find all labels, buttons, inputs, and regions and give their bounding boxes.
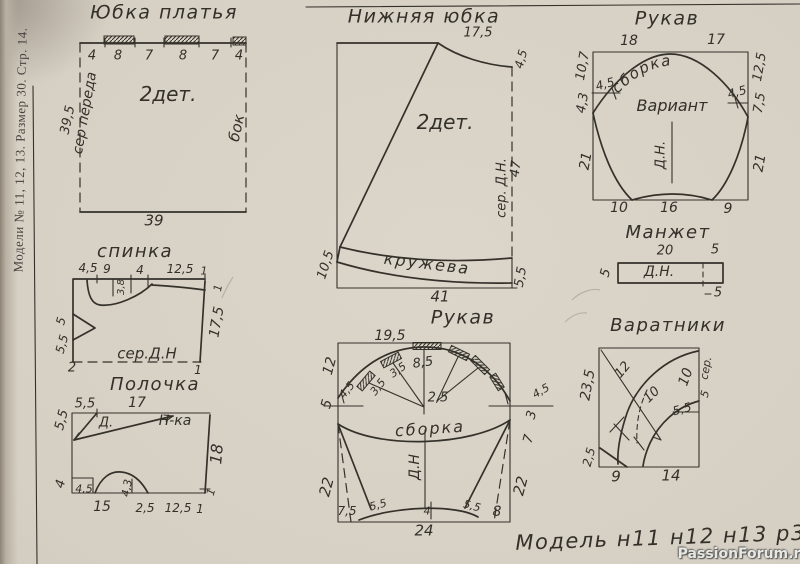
back-center-label: сер.Д.Н [117,347,177,362]
sleeve-top-dim-18: 18 [620,34,638,48]
sleeve-bottom-title: Рукав [431,309,496,328]
sleeve-top-left-dim-2: 21 [578,151,595,171]
pencil-marks [222,277,600,322]
sleeve-top-bottom-dim-0: 10 [610,201,628,215]
sleeve-top-bottom-dim-2: 9 [724,202,733,216]
back-top-dim-2: 4 [136,264,144,276]
front-top-dim-1: 17 [128,396,146,410]
pattern-sheet-page: сборка Юбка платья 4 8 7 8 7 4 39,5 сер … [0,0,800,564]
collars-bottom-dim-0: 9 [611,470,621,485]
front-top-dim-0: 5,5 [75,398,96,411]
sleeve-top-right-dim-2: 21 [752,153,769,173]
sleeve-bottom-pleat-dim-2: 8,5 [412,355,434,371]
skirt-top-dim-4: 7 [211,50,219,63]
cuff-top-dim-1: 5 [711,244,719,257]
back-neck-dim: 3,8 [117,279,127,295]
underskirt-center-label: сер. Д.Н. [496,158,509,218]
sleeve-bottom-bottom-dim-4: 8 [493,505,502,519]
sleeve-top-left-dim-1: 4,3 [575,92,591,115]
front-bottom-dim-0: 4,5 [75,484,93,495]
skirt-outline [80,36,246,212]
watermark: PassionForum.ru [678,547,800,561]
sleeve-top-gather-text: сборка [608,51,673,97]
front-bottom-dim-4: 12,5 [165,502,192,514]
skirt-top-dim-0: 4 [88,50,96,63]
cuff-title: Манжет [625,224,710,242]
collars-bottom-dim-1: 14 [661,469,680,484]
underskirt-right-bottom-dim: 5,5 [513,266,529,289]
skirt-top-dim-1: 8 [114,50,122,63]
sleeve-bottom-bottom-dim-2: 4 [424,506,431,517]
sleeve-top-bottom-dim-1: 16 [660,201,678,215]
underskirt-top-dim: 17,5 [464,27,493,40]
back-top-dim-0: 4,5 [78,262,97,274]
back-top-dim-3: 12,5 [167,263,194,275]
sleeve-top-right-dim-1: 7,5 [752,92,768,115]
sleeve-top-title: Рукав [635,10,700,29]
skirt-bottom-dim: 39 [144,214,163,229]
svg-text:сборка: сборка [608,51,673,97]
sleeve-bottom-total-dim: 24 [414,524,433,539]
sleeve-bottom-top-dim: 19,5 [374,329,405,343]
sleeve-bottom-center-dim: 2,5 [428,392,449,405]
sleeve-top-dim-17: 17 [707,33,725,47]
front-line-label: Н-ка [159,414,192,428]
back-top-dim-1: 9 [103,263,111,275]
skirt-title: Юбка платья [90,4,238,23]
back-bottom-left-dim: 2 [68,362,76,375]
front-dart-label: Д. [99,417,113,430]
back-top-dim-4: 1 [201,266,208,277]
front-bottom-dim-1: 15 [93,500,111,514]
skirt-top-dim-2: 7 [145,50,153,63]
front-bottom-dim-2: 4,3 [120,478,134,497]
front-bottom-dim-5: 1 [196,503,204,515]
cuff-center-label: Д.Н. [644,265,674,279]
sleeve-top-outline [592,52,748,200]
underskirt-bottom-dim: 41 [430,290,449,305]
front-bottom-dim-3: 2,5 [135,502,154,514]
front-right-dim: 18 [208,443,226,465]
underskirt-outline [337,43,517,288]
sleeve-top-center-label: Д.Н. [655,141,668,169]
cuff-bottom-right-dim: 5 [714,287,722,300]
skirt-pieces-label: 2дет. [140,84,197,104]
sleeve-bottom-bottom-dim-0: 7,5 [337,505,356,517]
cuff-top-dim-0: 20 [657,245,674,258]
collars-title: Варатники [610,317,726,335]
front-title: Полочка [110,376,200,394]
back-title: спинка [97,243,173,261]
skirt-top-dim-5: 4 [235,50,243,63]
underskirt-title: Нижняя юбка [348,8,500,27]
underskirt-pieces-label: 2дет. [417,112,474,132]
underskirt-right-dim: 47 [509,160,524,178]
sleeve-bottom-center-label: Д.Н [408,454,422,480]
skirt-top-dim-3: 8 [179,50,187,63]
sleeve-top-variant-label: Вариант [637,98,708,114]
gather-curve-label: сборка [608,51,673,97]
